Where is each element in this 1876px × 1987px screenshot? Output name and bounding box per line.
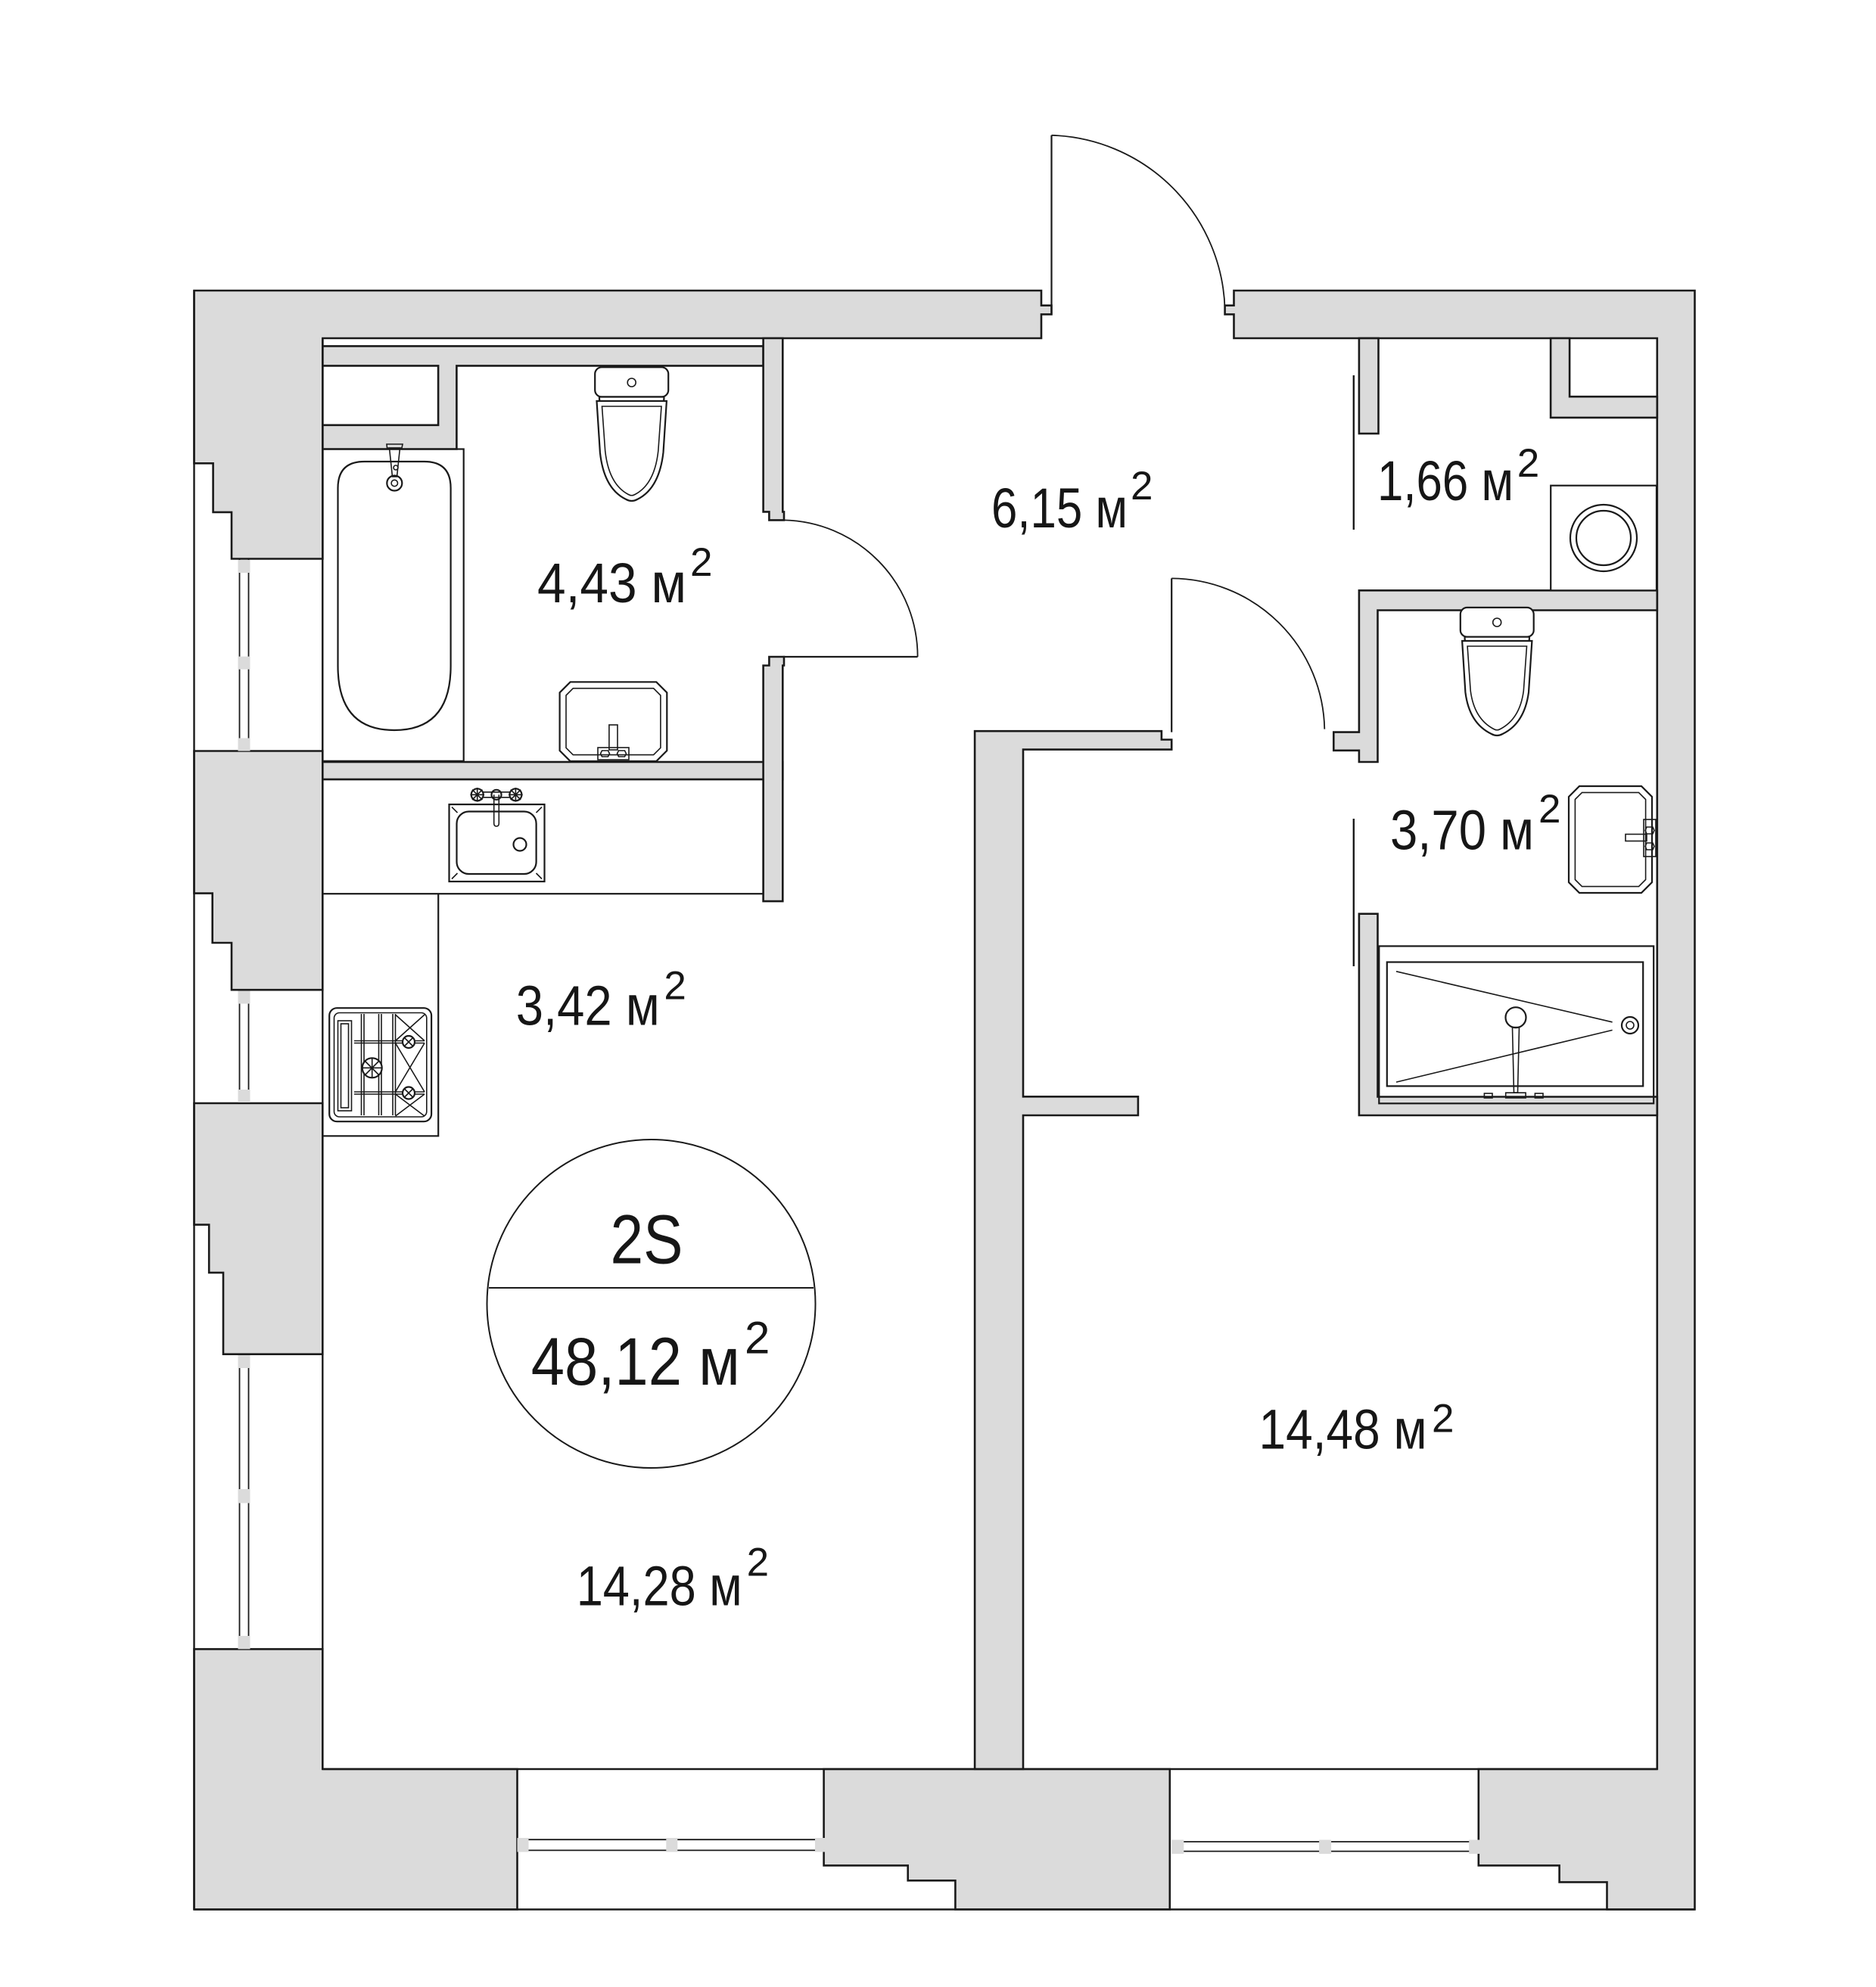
svg-text:2: 2 (664, 964, 686, 1009)
svg-text:4,43 м: 4,43 м (537, 552, 686, 614)
svg-text:14,28 м: 14,28 м (577, 1555, 742, 1618)
svg-text:48,12 м: 48,12 м (531, 1323, 740, 1399)
svg-text:2: 2 (1131, 464, 1153, 508)
svg-text:14,48 м: 14,48 м (1259, 1398, 1427, 1460)
svg-text:2S: 2S (611, 1202, 683, 1279)
svg-text:2: 2 (1538, 787, 1560, 832)
svg-text:1,66 м: 1,66 м (1377, 449, 1514, 512)
svg-text:2: 2 (747, 1541, 769, 1585)
svg-text:2: 2 (690, 540, 712, 585)
svg-text:2: 2 (745, 1312, 770, 1363)
svg-text:6,15 м: 6,15 м (991, 477, 1128, 540)
svg-text:3,42 м: 3,42 м (516, 974, 660, 1037)
svg-text:2: 2 (1517, 441, 1539, 486)
svg-text:2: 2 (1432, 1397, 1454, 1441)
svg-text:3,70 м: 3,70 м (1390, 798, 1534, 861)
